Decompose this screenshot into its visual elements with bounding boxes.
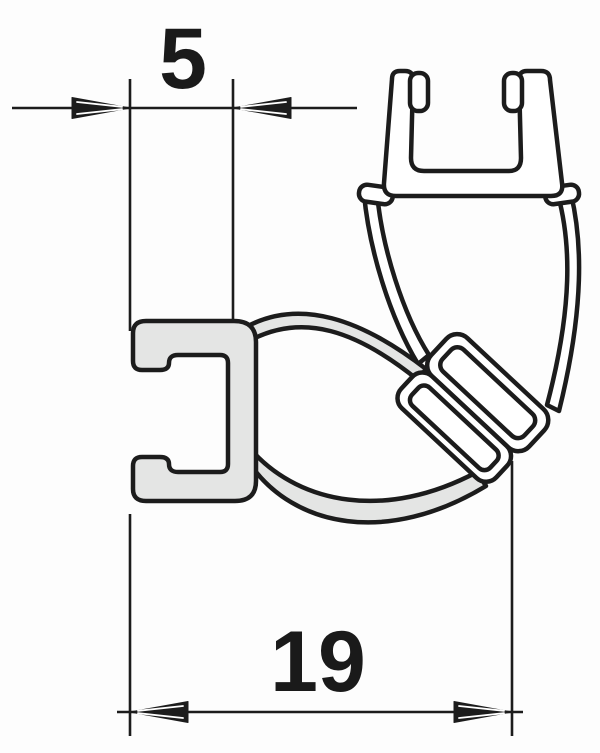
dimension-5: 5 — [12, 11, 357, 331]
profile-diagram: 5 19 — [0, 0, 600, 753]
profile-diagram-svg: 5 19 — [0, 0, 600, 753]
dimension-19-label: 19 — [270, 614, 366, 710]
top-channel-right-lip — [504, 73, 522, 111]
dim-arrow-left — [72, 98, 130, 119]
dim-arrow-right — [233, 98, 291, 119]
dim-arrow-right — [454, 702, 512, 723]
top-channel-left-lip — [410, 73, 428, 111]
dim-arrow-left — [130, 702, 188, 723]
lower-seal-arc — [250, 453, 486, 522]
dimension-5-label: 5 — [159, 11, 207, 107]
seal-bulb-right-wall — [547, 194, 579, 411]
left-glass-channel — [133, 321, 256, 501]
